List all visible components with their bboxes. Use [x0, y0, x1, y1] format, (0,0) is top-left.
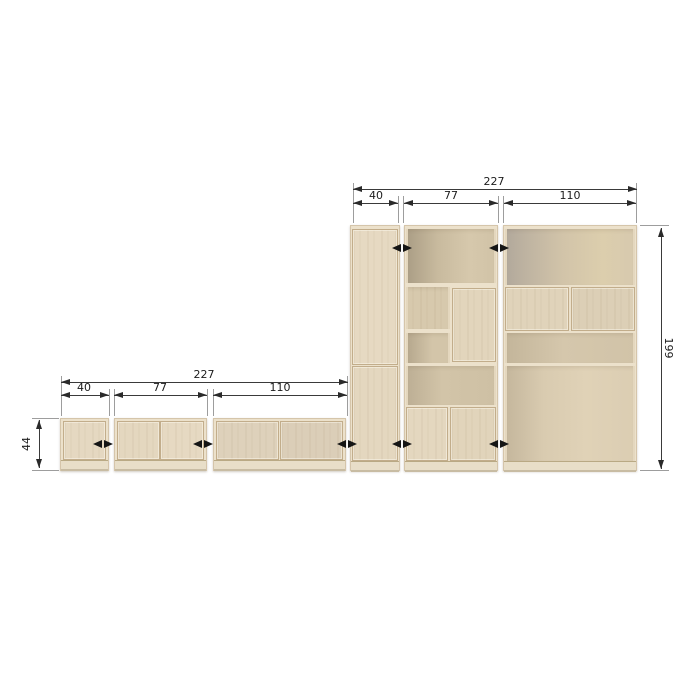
dim-line-top-40 [353, 203, 398, 204]
dim-label-height-44: 44 [21, 429, 33, 459]
plinth [115, 460, 206, 471]
middle-door [452, 288, 496, 362]
extension-line [398, 196, 399, 223]
dim-line-bottom-40 [61, 395, 109, 396]
plinth [214, 460, 345, 471]
tall-unit-column-77 [404, 225, 498, 471]
open-compartment-top [406, 229, 496, 283]
plinth [61, 460, 108, 471]
door-swing-arrow-icon [392, 244, 412, 252]
dim-line-height-44 [39, 420, 40, 468]
tall-unit-column-110 [503, 225, 637, 471]
extension-line [640, 470, 669, 471]
dim-line-bottom-total-width [61, 382, 348, 383]
open-compartment-top [505, 229, 635, 285]
hanging-door-right [571, 287, 635, 331]
dim-label-height-199: 199 [662, 333, 674, 363]
dim-label-top-40: 40 [356, 190, 396, 202]
dim-label-bottom-110: 110 [260, 382, 300, 394]
dim-label-top-110: 110 [550, 190, 590, 202]
door-swing-arrow-icon [93, 440, 113, 448]
extension-line [640, 225, 669, 226]
dim-label-bottom-40: 40 [64, 382, 104, 394]
plinth [504, 461, 636, 472]
dim-label-top-total-width: 227 [474, 176, 514, 188]
hanging-door-left [505, 287, 569, 331]
extension-line [207, 389, 208, 416]
plinth [405, 461, 497, 472]
open-shelf-band [505, 333, 635, 363]
extension-line [32, 418, 59, 419]
cabinet-door-right [280, 421, 343, 460]
bottom-door-right [450, 407, 496, 461]
extension-line [109, 389, 110, 416]
door-swing-arrow-icon [337, 440, 357, 448]
open-cubby-lower [406, 333, 450, 363]
cabinet-door-left [117, 421, 160, 460]
dim-line-bottom-77 [114, 395, 207, 396]
plinth [351, 461, 399, 472]
bottom-door-left [406, 407, 448, 461]
door-swing-arrow-icon [193, 440, 213, 448]
furniture-dimension-diagram: 227 40 77 110 199 227 40 77 110 [0, 0, 700, 700]
open-shelf-band [406, 366, 496, 405]
open-cubby-upper [406, 287, 450, 329]
cabinet-door-left [216, 421, 279, 460]
dim-label-bottom-77: 77 [140, 382, 180, 394]
door-swing-arrow-icon [489, 244, 509, 252]
door-swing-arrow-icon [392, 440, 412, 448]
door-swing-arrow-icon [489, 440, 509, 448]
dim-label-bottom-total-width: 227 [184, 369, 224, 381]
dim-label-top-77: 77 [431, 190, 471, 202]
tall-unit-column-40 [350, 225, 400, 471]
dim-line-top-77 [404, 203, 498, 204]
dim-line-bottom-110 [213, 395, 347, 396]
dim-line-top-110 [504, 203, 636, 204]
open-compartment-bottom [505, 366, 635, 461]
extension-line [32, 470, 59, 471]
extension-line [498, 196, 499, 223]
low-cabinet-110 [213, 418, 346, 471]
